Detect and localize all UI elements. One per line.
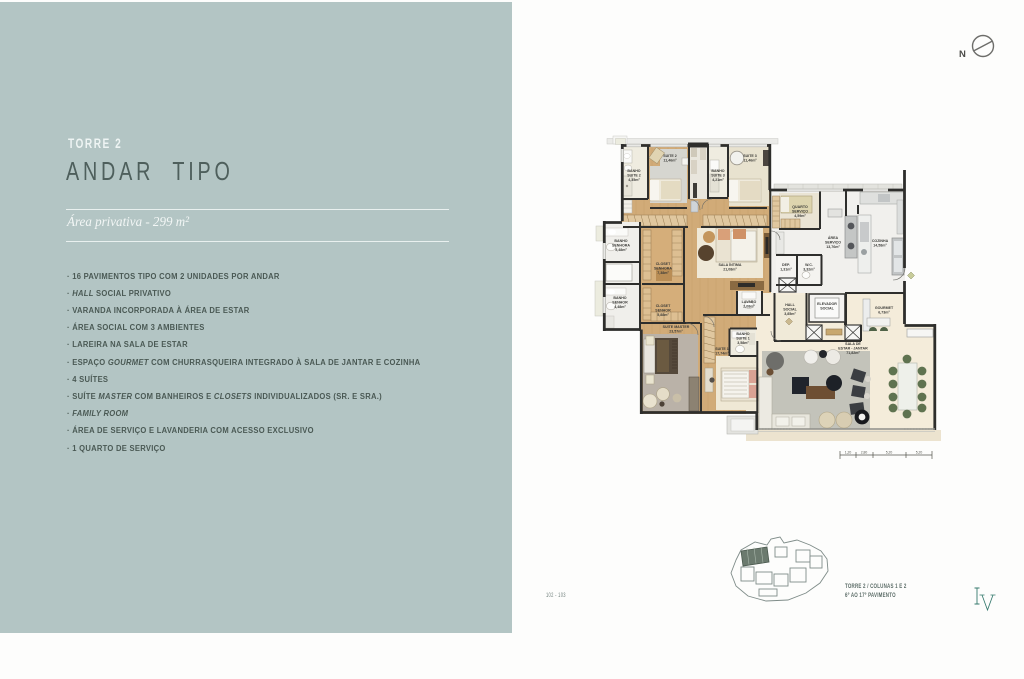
svg-text:5,20: 5,20: [916, 450, 923, 454]
svg-text:4,59m²: 4,59m²: [794, 214, 806, 218]
svg-text:SUITE 2: SUITE 2: [663, 154, 677, 158]
svg-text:BANHO: BANHO: [627, 169, 640, 173]
svg-text:SALA ÍNTIMA: SALA ÍNTIMA: [718, 262, 741, 267]
svg-text:SUITE 1: SUITE 1: [736, 336, 750, 340]
svg-text:SENHOR: SENHOR: [655, 308, 671, 312]
svg-text:3,32m²: 3,32m²: [803, 267, 815, 271]
svg-text:SUITE 3: SUITE 3: [743, 154, 757, 158]
svg-text:14,58m²: 14,58m²: [873, 243, 887, 247]
svg-text:ÁREA: ÁREA: [828, 235, 839, 240]
svg-text:BANHO: BANHO: [614, 239, 627, 243]
svg-text:SUITE MASTER: SUITE MASTER: [663, 325, 690, 329]
svg-text:SERVIÇO: SERVIÇO: [825, 240, 841, 244]
svg-text:CLOSET: CLOSET: [656, 304, 671, 308]
svg-text:BANHO: BANHO: [711, 169, 724, 173]
svg-text:BANHO: BANHO: [736, 332, 749, 336]
svg-text:4,35m²: 4,35m²: [628, 178, 640, 182]
svg-text:71,82m²: 71,82m²: [846, 351, 860, 355]
svg-text:SOCIAL: SOCIAL: [783, 307, 797, 311]
svg-text:SUITE 1: SUITE 1: [715, 347, 729, 351]
svg-text:1,31m²: 1,31m²: [780, 267, 792, 271]
svg-text:DEP.: DEP.: [782, 263, 790, 267]
svg-text:COZINHA: COZINHA: [872, 239, 889, 243]
svg-text:CLOSET: CLOSET: [656, 262, 671, 266]
svg-text:SENHOR: SENHOR: [612, 300, 628, 304]
svg-text:2,08m²: 2,08m²: [743, 304, 755, 308]
svg-text:23,57m²: 23,57m²: [669, 329, 683, 333]
svg-text:W.C.: W.C.: [805, 263, 813, 267]
svg-text:N: N: [959, 49, 966, 60]
svg-text:5,20: 5,20: [886, 450, 893, 454]
svg-text:GOURMET: GOURMET: [875, 306, 894, 310]
svg-text:SOCIAL: SOCIAL: [820, 306, 834, 310]
svg-text:QUARTO: QUARTO: [792, 205, 808, 209]
svg-text:SUITE 3: SUITE 3: [711, 173, 725, 177]
svg-text:ESTAR - JANTAR: ESTAR - JANTAR: [838, 346, 868, 350]
svg-text:ELEVADOR: ELEVADOR: [817, 302, 837, 306]
svg-text:SUITE 2: SUITE 2: [627, 173, 641, 177]
svg-text:SENHORA: SENHORA: [654, 266, 672, 270]
svg-text:BANHO: BANHO: [613, 296, 626, 300]
svg-text:SENHORA: SENHORA: [612, 243, 630, 247]
svg-text:7,38m²: 7,38m²: [657, 271, 669, 275]
svg-text:2,80: 2,80: [861, 450, 868, 454]
svg-text:3,58m²: 3,58m²: [737, 341, 749, 345]
svg-text:11,46m²: 11,46m²: [743, 158, 757, 162]
svg-text:SALA DE: SALA DE: [845, 342, 861, 346]
svg-text:LAVABO: LAVABO: [742, 300, 757, 304]
svg-text:3,85m²: 3,85m²: [784, 312, 796, 316]
svg-text:11,46m²: 11,46m²: [663, 158, 677, 162]
svg-text:6,73m²: 6,73m²: [878, 310, 890, 314]
svg-text:13,76m²: 13,76m²: [826, 245, 840, 249]
svg-text:1,20: 1,20: [845, 450, 852, 454]
svg-text:17,74m²: 17,74m²: [715, 351, 729, 355]
svg-text:5,48m²: 5,48m²: [615, 248, 627, 252]
svg-text:SERVIÇO: SERVIÇO: [792, 209, 808, 213]
svg-text:21,08m²: 21,08m²: [723, 267, 737, 271]
svg-text:5,88m²: 5,88m²: [657, 313, 669, 317]
svg-text:HALL: HALL: [785, 303, 795, 307]
svg-text:4,48m²: 4,48m²: [614, 305, 626, 309]
svg-text:4,21m²: 4,21m²: [712, 178, 724, 182]
